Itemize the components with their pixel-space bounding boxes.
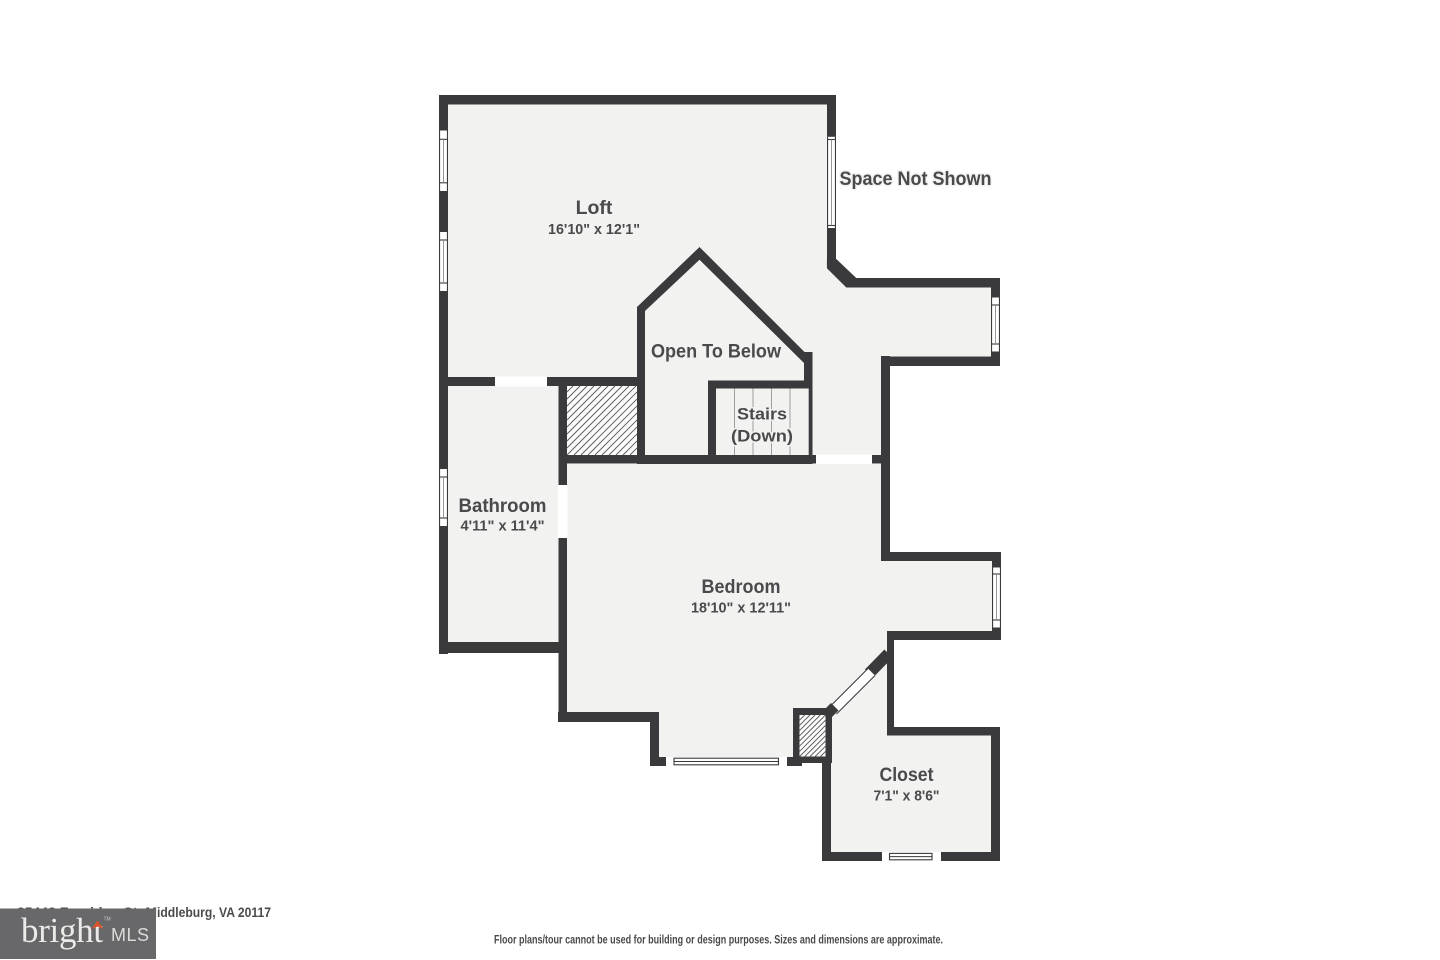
svg-text:Space Not Shown: Space Not Shown — [840, 168, 992, 190]
svg-text:MLS: MLS — [111, 925, 150, 945]
svg-text:iddleburg, VA 20117: iddleburg, VA 20117 — [157, 904, 271, 920]
svg-text:18'10" x 12'11": 18'10" x 12'11" — [691, 600, 791, 617]
svg-text:16'10" x 12'1": 16'10" x 12'1" — [548, 221, 640, 238]
svg-text:TM: TM — [104, 917, 111, 923]
svg-text:Open To Below: Open To Below — [651, 341, 782, 363]
svg-text:Stairs: Stairs — [737, 405, 787, 424]
svg-text:Floor plans/tour cannot be use: Floor plans/tour cannot be used for buil… — [494, 935, 943, 947]
svg-text:7'1" x 8'6": 7'1" x 8'6" — [874, 788, 940, 805]
svg-text:4'11" x 11'4": 4'11" x 11'4" — [461, 518, 545, 535]
svg-text:Bathroom: Bathroom — [459, 495, 547, 517]
svg-text:(Down): (Down) — [731, 427, 793, 446]
svg-text:Bedroom: Bedroom — [702, 576, 781, 598]
svg-text:Closet: Closet — [880, 764, 934, 786]
svg-text:bright: bright — [21, 911, 103, 950]
svg-text:Loft: Loft — [576, 197, 613, 219]
